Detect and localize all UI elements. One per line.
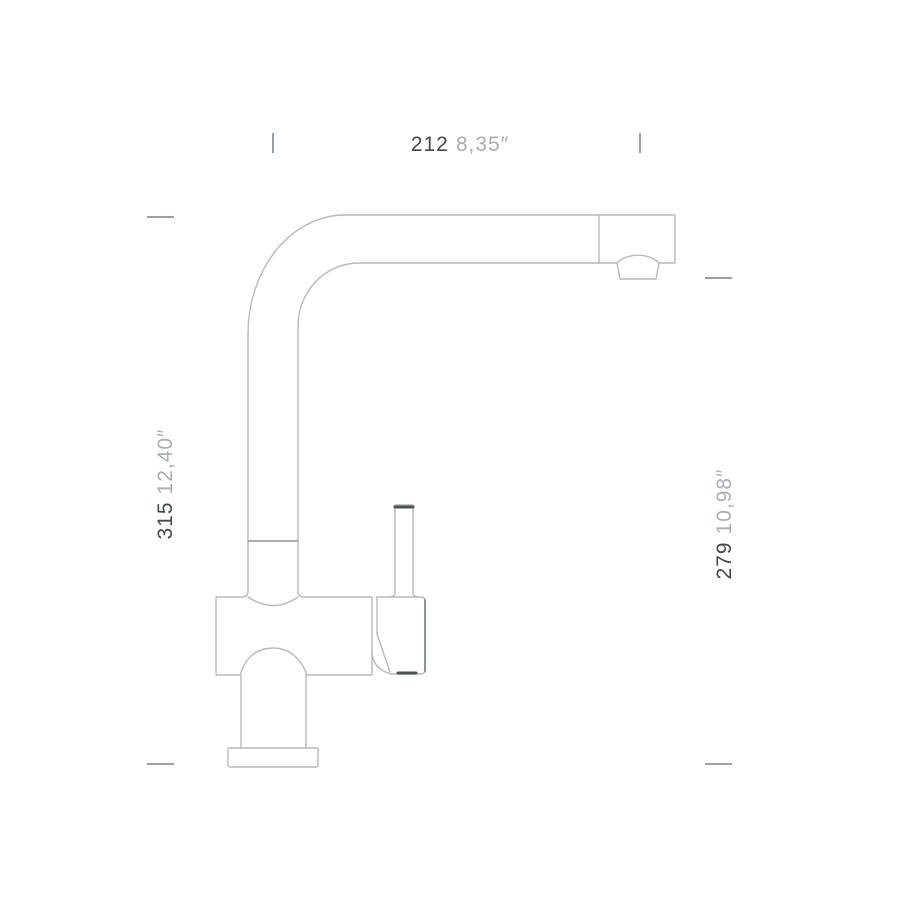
dimension-top-inches: 8,35″ xyxy=(456,133,509,156)
dimension-left-mm: 315 xyxy=(154,501,177,539)
riser-body-fillet xyxy=(248,597,298,606)
dimension-top-tick-left xyxy=(272,133,274,153)
base-column xyxy=(241,675,306,748)
dimension-right-tick-bottom xyxy=(705,763,732,765)
riser-right-edge xyxy=(298,326,304,597)
body-outline xyxy=(216,597,372,675)
dimension-top-mm: 212 xyxy=(411,133,449,156)
body-neck-arch xyxy=(240,648,307,675)
dimension-top-tick-right xyxy=(639,133,641,153)
drawing-canvas: 2128,35″ 31512,40″ 27910,98″ xyxy=(0,0,899,899)
dimension-right-label: 27910,98″ xyxy=(713,468,737,579)
spout-nozzle xyxy=(617,263,659,279)
dimension-left-tick-bottom xyxy=(147,763,174,765)
dimension-top-label: 2128,35″ xyxy=(411,133,509,157)
spout-inner-profile xyxy=(298,263,617,326)
handle-lever-rod xyxy=(390,505,418,597)
spout-nozzle-dome xyxy=(617,255,659,263)
handle-base-arc xyxy=(372,654,391,674)
dimension-right-tick-top xyxy=(705,277,732,279)
dimension-left-tick-top xyxy=(147,216,174,218)
handle-base-outline xyxy=(377,597,425,674)
riser-left-edge xyxy=(242,334,248,597)
spout-outer-profile xyxy=(248,215,675,334)
dimension-right-inches: 10,98″ xyxy=(713,468,736,534)
dimension-left-label: 31512,40″ xyxy=(154,428,178,539)
dimension-left-inches: 12,40″ xyxy=(154,428,177,494)
dimension-right-mm: 279 xyxy=(713,541,736,579)
base-flange xyxy=(228,748,318,767)
handle-base-diagonal xyxy=(377,597,390,672)
